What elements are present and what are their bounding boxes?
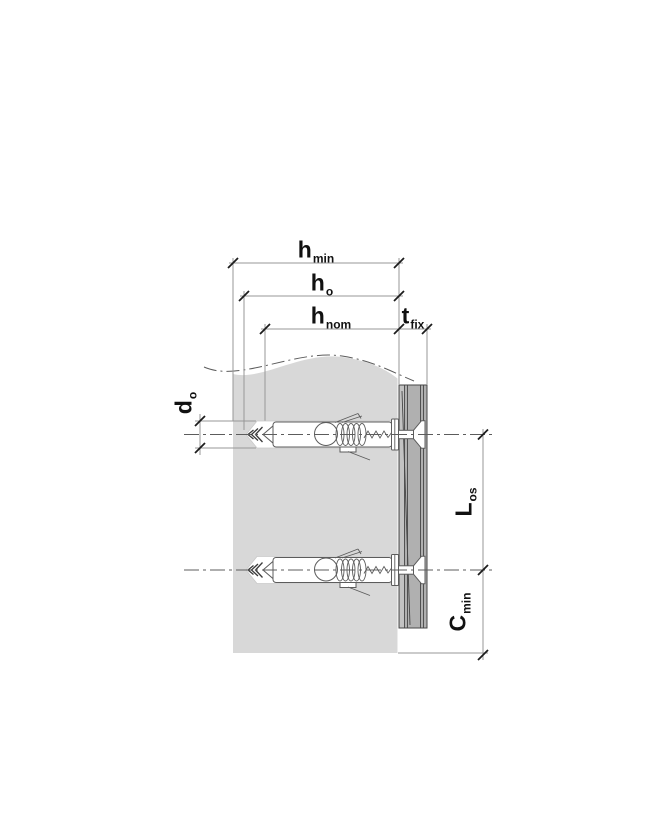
los-symbol: L — [451, 502, 477, 516]
cmin-subscript: min — [460, 593, 474, 614]
dim-label-ho: ho — [311, 272, 333, 295]
ho-symbol: h — [311, 270, 325, 296]
tfix-symbol: t — [402, 303, 410, 329]
cmin-symbol: C — [445, 615, 471, 632]
dim-label-los: Los — [453, 487, 476, 516]
do-symbol: d — [171, 400, 197, 414]
tfix-subscript: fix — [410, 318, 424, 332]
do-subscript: o — [186, 392, 200, 399]
dim-label-hnom: hnom — [311, 305, 351, 328]
hmin-subscript: min — [313, 252, 334, 266]
dim-label-do: do — [173, 392, 196, 414]
hnom-symbol: h — [311, 303, 325, 329]
hnom-subscript: nom — [326, 318, 351, 332]
wall-section — [233, 356, 398, 653]
drawing-svg — [0, 0, 669, 814]
ho-subscript: o — [326, 285, 333, 299]
hmin-symbol: h — [298, 237, 312, 263]
los-subscript: os — [466, 487, 480, 501]
dim-label-tfix: tfix — [402, 305, 425, 328]
dim-label-cmin: Cmin — [447, 593, 470, 632]
dim-label-hmin: hmin — [298, 239, 334, 262]
diagram-canvas: hmin ho hnom tfix do Los Cmin — [0, 0, 669, 814]
